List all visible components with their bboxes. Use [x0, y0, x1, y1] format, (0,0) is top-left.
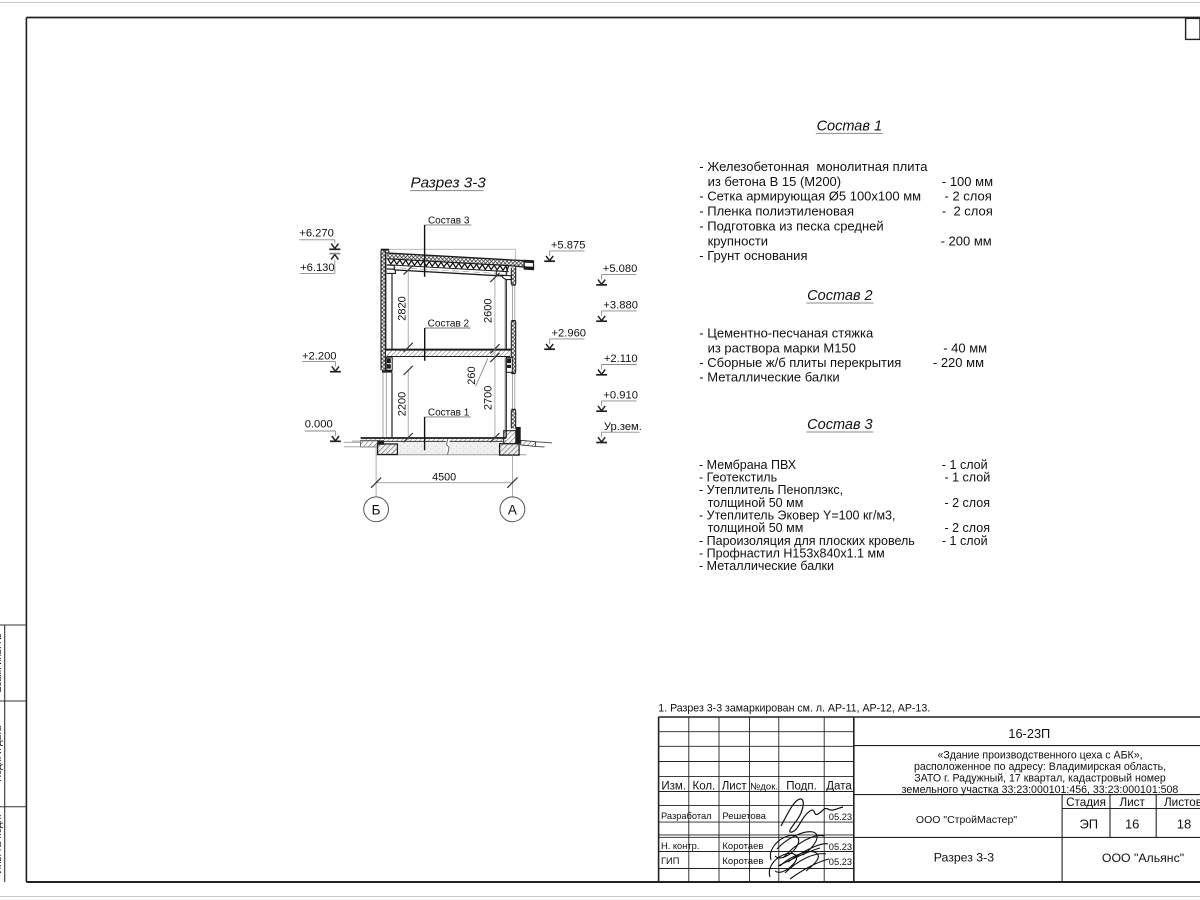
svg-text:+2.960: +2.960: [552, 328, 587, 340]
svg-text:+2.110: +2.110: [604, 353, 638, 365]
svg-text:05.23: 05.23: [829, 812, 852, 822]
svg-text:2700: 2700: [483, 386, 495, 410]
svg-text:- Сетка армирующая Ø5 100х100: - Сетка армирующая Ø5 100х100 мм: [699, 189, 921, 204]
svg-text:4500: 4500: [432, 472, 456, 484]
svg-text:260: 260: [466, 366, 478, 384]
svg-text:Состав 3: Состав 3: [807, 417, 872, 433]
svg-text:Состав 1: Состав 1: [817, 118, 882, 134]
svg-text:Коротаев: Коротаев: [722, 856, 763, 867]
svg-text:- 40 мм: - 40 мм: [943, 340, 987, 355]
svg-text:05.23: 05.23: [829, 857, 852, 867]
svg-text:Стадия: Стадия: [1066, 796, 1106, 809]
svg-text:ЗАТО г. Радужный, 17 квартал,: ЗАТО г. Радужный, 17 квартал, кадастровы…: [914, 772, 1166, 784]
svg-text:Лист: Лист: [1119, 796, 1145, 809]
svg-text:- 2 слоя: - 2 слоя: [942, 204, 993, 219]
svg-text:Дата: Дата: [826, 780, 852, 792]
svg-text:Лист: Лист: [722, 780, 748, 792]
svg-text:18: 18: [1177, 817, 1191, 832]
svg-text:«Здание производственного цеха: «Здание производственного цеха с АБК»,: [937, 749, 1142, 761]
svg-text:+0.910: +0.910: [603, 390, 638, 402]
svg-text:Подп. и дата: Подп. и дата: [0, 725, 4, 782]
svg-text:Разрез 3-3: Разрез 3-3: [411, 175, 487, 192]
svg-text:- 2 слоя: - 2 слоя: [945, 496, 990, 510]
svg-text:- 220 мм: - 220 мм: [933, 355, 984, 370]
svg-text:№док.: №док.: [750, 782, 778, 793]
svg-text:16-23П: 16-23П: [1008, 726, 1050, 741]
svg-text:+6.270: +6.270: [299, 228, 334, 240]
svg-text:земельного участка 33:23:00010: земельного участка 33:23:000101:456, 33:…: [902, 784, 1179, 796]
svg-text:А: А: [508, 502, 517, 517]
svg-text:- Железобетонная монолитная п: - Железобетонная монолитная плита: [699, 159, 928, 174]
svg-text:ГИП: ГИП: [661, 856, 679, 866]
svg-text:Б: Б: [372, 502, 381, 517]
svg-text:- Грунт основания: - Грунт основания: [699, 248, 807, 263]
svg-text:- Металлические балки: - Металлические балки: [699, 559, 834, 573]
svg-text:ООО "СтройМастер": ООО "СтройМастер": [916, 814, 1017, 826]
svg-text:расположенное по адресу: Влади: расположенное по адресу: Владимирская об…: [914, 761, 1166, 773]
svg-text:Решетова: Решетова: [722, 811, 766, 822]
svg-text:- 1 слой: - 1 слой: [942, 534, 988, 548]
svg-text:16: 16: [1125, 817, 1139, 832]
svg-text:крупности: крупности: [708, 233, 768, 248]
svg-text:Взам. инв. №: Взам. инв. №: [0, 634, 4, 693]
svg-text:2820: 2820: [396, 296, 408, 320]
svg-text:0.000: 0.000: [305, 419, 333, 431]
svg-text:+3.880: +3.880: [603, 300, 638, 312]
svg-text:1. Разрез 3-3 замаркирован см.: 1. Разрез 3-3 замаркирован см. л. АР-11,…: [658, 703, 930, 715]
svg-text:Кол.: Кол.: [693, 780, 716, 792]
svg-text:Ур.зем.: Ур.зем.: [604, 421, 642, 433]
svg-text:2200: 2200: [396, 392, 408, 416]
svg-text:- Пленка полиэтиленовая: - Пленка полиэтиленовая: [699, 204, 854, 219]
svg-text:- 200 мм: - 200 мм: [941, 233, 992, 248]
svg-text:ЭП: ЭП: [1079, 817, 1098, 832]
svg-text:Разрез 3-3: Разрез 3-3: [934, 850, 995, 864]
svg-text:- Цементно-песчаная стяжка: - Цементно-песчаная стяжка: [699, 326, 874, 341]
svg-text:+6.130: +6.130: [300, 262, 335, 274]
svg-text:+2.200: +2.200: [302, 350, 337, 362]
svg-text:Изм.: Изм.: [661, 780, 686, 792]
svg-text:- 100 мм: - 100 мм: [942, 174, 993, 189]
svg-text:Листов: Листов: [1164, 796, 1200, 809]
svg-text:- Сборные ж/б плиты перекрытия: - Сборные ж/б плиты перекрытия: [699, 355, 901, 370]
svg-text:- Металлические балки: - Металлические балки: [699, 370, 839, 385]
svg-text:05.23: 05.23: [829, 842, 852, 852]
svg-text:+5.080: +5.080: [603, 263, 638, 275]
svg-text:- 2 слоя: - 2 слоя: [945, 189, 992, 204]
svg-text:ООО "Альянс": ООО "Альянс": [1102, 851, 1184, 865]
svg-text:- Подготовка из песка средней: - Подготовка из песка средней: [699, 218, 883, 233]
svg-text:Инв. № подл.: Инв. № подл.: [0, 814, 4, 873]
svg-text:- 1 слой: - 1 слой: [945, 471, 991, 485]
svg-text:Н. контр.: Н. контр.: [661, 841, 699, 851]
svg-text:Состав 2: Состав 2: [807, 288, 872, 304]
svg-text:Коротаев: Коротаев: [722, 841, 763, 852]
svg-text:2600: 2600: [483, 298, 495, 322]
svg-text:из бетона В 15 (М200): из бетона В 15 (М200): [708, 174, 842, 189]
svg-text:Разработал: Разработал: [661, 811, 712, 821]
svg-text:Подп.: Подп.: [786, 780, 817, 792]
svg-text:из раствора марки М150: из раствора марки М150: [708, 340, 856, 355]
svg-text:+5.875: +5.875: [551, 240, 586, 252]
